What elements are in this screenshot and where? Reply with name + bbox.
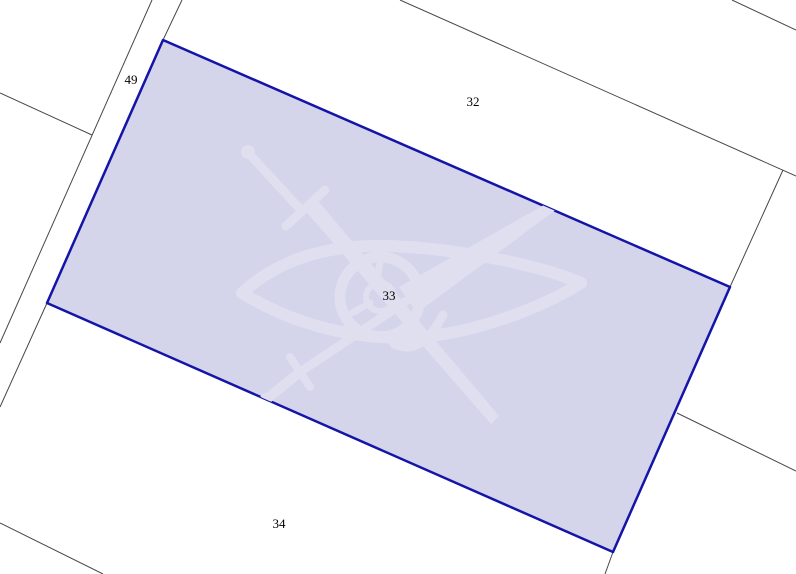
parcel-label-33: 33 [383,288,396,303]
cadastral-map-canvas[interactable]: 49 32 33 34 [0,0,796,574]
cadastral-map[interactable]: 49 32 33 34 [0,0,796,574]
parcel-label-34: 34 [273,516,287,531]
parcel-label-32: 32 [467,94,480,109]
parcel-label-49: 49 [125,72,138,87]
